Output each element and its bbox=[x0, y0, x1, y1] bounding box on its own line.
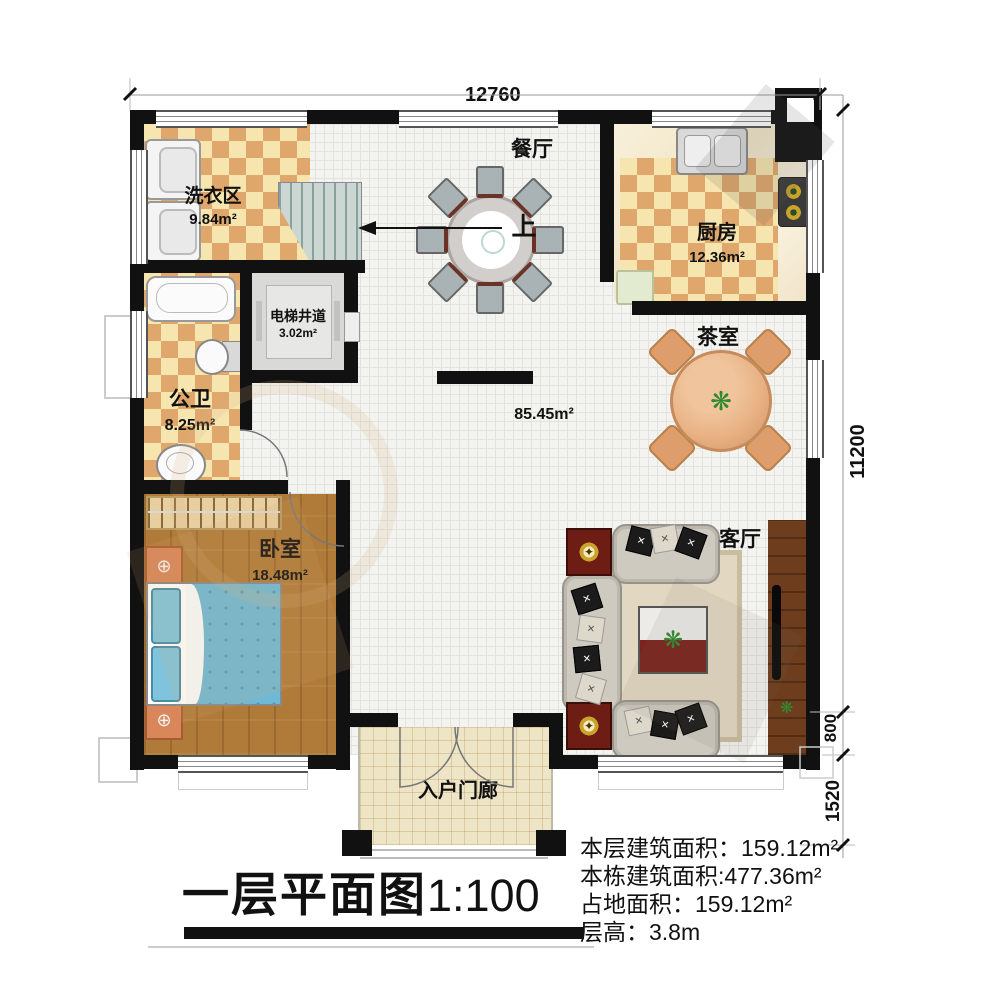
wall bbox=[130, 755, 178, 769]
room-name: 入户门廊 bbox=[418, 780, 498, 802]
elevator-door bbox=[344, 312, 360, 342]
wall bbox=[336, 480, 350, 770]
stairs-up-label: 上 bbox=[508, 213, 540, 242]
fridge bbox=[616, 270, 654, 305]
room-area: 85.45m² bbox=[514, 406, 574, 423]
title-underline-thin bbox=[148, 946, 594, 948]
room-name: 客厅 bbox=[719, 528, 761, 551]
window bbox=[806, 360, 824, 458]
info-line: 层高：3.8m bbox=[580, 918, 995, 946]
info-value: 159.12m² bbox=[695, 891, 792, 917]
window bbox=[598, 755, 783, 773]
wall bbox=[344, 273, 358, 312]
wall bbox=[350, 713, 398, 727]
info-label: 层高： bbox=[580, 919, 649, 945]
wall bbox=[130, 398, 144, 770]
sofa-pillow: ✕ bbox=[576, 614, 605, 643]
room-area: 12.36m² bbox=[689, 249, 745, 266]
bed bbox=[146, 582, 282, 706]
title-scale: 1:100 bbox=[427, 870, 540, 922]
room-name: 餐厅 bbox=[511, 138, 553, 161]
info-value: 159.12m² bbox=[741, 835, 838, 861]
bed-pillow bbox=[151, 646, 181, 702]
dining-chair bbox=[416, 226, 448, 254]
end-table: ✦ bbox=[566, 528, 612, 576]
room-name: 公卫 bbox=[169, 388, 211, 411]
wall bbox=[240, 273, 252, 430]
wall bbox=[130, 480, 288, 494]
dining-label: 餐厅 bbox=[492, 138, 572, 162]
window bbox=[130, 150, 148, 264]
tv-cabinet-wall: ❋ bbox=[768, 520, 806, 755]
room-name: 电梯井道 bbox=[270, 308, 326, 324]
info-value: 3.8m bbox=[649, 919, 700, 945]
bathtub bbox=[146, 276, 236, 322]
porch-pillar bbox=[536, 830, 566, 856]
info-line: 本层建筑面积：159.12m² bbox=[580, 834, 995, 862]
toilet bbox=[195, 339, 229, 375]
dining-chair bbox=[476, 282, 504, 314]
bathroom-label: 公卫 8.25m² bbox=[140, 388, 240, 436]
floor-plan-canvas: ❋ ⊕ ⊕ ✦ ✦ ❋ ✕ ✕ ✕ ✕ ✕ ✕ ✕ ✕ ✕ ✕ ❋ bbox=[0, 0, 1000, 990]
window bbox=[399, 110, 558, 128]
room-name: 厨房 bbox=[697, 222, 737, 244]
dim-tick bbox=[837, 104, 849, 116]
window bbox=[130, 311, 148, 398]
info-label: 本栋建筑面积: bbox=[580, 863, 724, 889]
wall bbox=[558, 110, 652, 124]
wall bbox=[307, 110, 399, 124]
dim-tick bbox=[837, 749, 849, 761]
laundry-label: 洗衣区 9.84m² bbox=[158, 186, 268, 230]
dim-right-lower: 800 bbox=[821, 711, 841, 745]
wall bbox=[806, 458, 820, 770]
elevator-label: 电梯井道 3.02m² bbox=[254, 308, 342, 341]
sofa-pillow: ✕ bbox=[573, 645, 602, 674]
dining-chair bbox=[476, 166, 504, 198]
bed-pillow bbox=[151, 588, 181, 644]
title-text: 一层平面图 bbox=[182, 856, 427, 925]
plant-icon: ❋ bbox=[663, 626, 683, 655]
room-name: 洗衣区 bbox=[184, 186, 241, 207]
wall bbox=[806, 273, 820, 360]
plant-icon: ❋ bbox=[780, 698, 793, 718]
window bbox=[178, 755, 308, 773]
tea-label: 茶室 bbox=[678, 326, 758, 350]
porch-pillar bbox=[342, 830, 372, 856]
wall bbox=[130, 110, 144, 150]
end-table: ✦ bbox=[566, 702, 612, 750]
wall bbox=[632, 301, 820, 315]
star-inlay-icon: ✦ bbox=[578, 715, 600, 737]
nightstand: ⊕ bbox=[145, 700, 183, 740]
kitchen-label: 厨房 12.36m² bbox=[662, 222, 772, 268]
info-line: 占地面积：159.12m² bbox=[580, 890, 995, 918]
wall bbox=[344, 340, 358, 370]
room-area: 8.25m² bbox=[165, 417, 216, 434]
bedroom-label: 卧室 18.48m² bbox=[230, 538, 330, 586]
wall bbox=[549, 713, 563, 769]
room-area: 3.02m² bbox=[279, 326, 317, 340]
info-label: 占地面积： bbox=[580, 891, 695, 917]
title-underline bbox=[184, 927, 584, 939]
dim-top-width: 12760 bbox=[462, 84, 524, 107]
coffee-table: ❋ bbox=[638, 606, 708, 674]
building-info: 本层建筑面积：159.12m² 本栋建筑面积:477.36m² 占地面积：159… bbox=[580, 834, 995, 946]
info-line: 本栋建筑面积:477.36m² bbox=[580, 862, 995, 890]
star-inlay-icon: ✦ bbox=[578, 541, 600, 563]
hall-area-label: 85.45m² bbox=[496, 406, 592, 424]
dim-tick bbox=[124, 88, 136, 100]
plant-icon: ❋ bbox=[710, 386, 732, 417]
wall bbox=[783, 755, 820, 769]
drawing-title: 一层平面图 1:100 bbox=[182, 856, 540, 925]
info-label: 本层建筑面积： bbox=[580, 835, 741, 861]
kitchen-sink bbox=[676, 127, 748, 175]
dim-right-bottom: 1520 bbox=[823, 777, 845, 825]
nightstand: ⊕ bbox=[145, 546, 183, 586]
wall bbox=[240, 370, 358, 383]
dim-right-height: 11200 bbox=[847, 421, 870, 482]
stove bbox=[778, 177, 809, 227]
tea-table: ❋ bbox=[670, 350, 772, 452]
room-area: 18.48m² bbox=[252, 567, 308, 584]
room-area: 9.84m² bbox=[189, 211, 237, 228]
window bbox=[652, 110, 771, 128]
room-name: 卧室 bbox=[259, 538, 301, 561]
wall bbox=[130, 260, 365, 273]
wall-stub bbox=[437, 371, 533, 384]
living-label: 客厅 bbox=[700, 528, 780, 552]
window bbox=[806, 160, 824, 273]
room-name: 茶室 bbox=[697, 326, 739, 349]
tv bbox=[772, 585, 781, 680]
porch-label: 入户门廊 bbox=[408, 780, 508, 803]
wall bbox=[600, 124, 614, 282]
info-value: 477.36m² bbox=[724, 863, 821, 889]
window bbox=[156, 110, 307, 128]
wardrobe bbox=[146, 496, 282, 530]
chimney-flue bbox=[787, 98, 814, 122]
